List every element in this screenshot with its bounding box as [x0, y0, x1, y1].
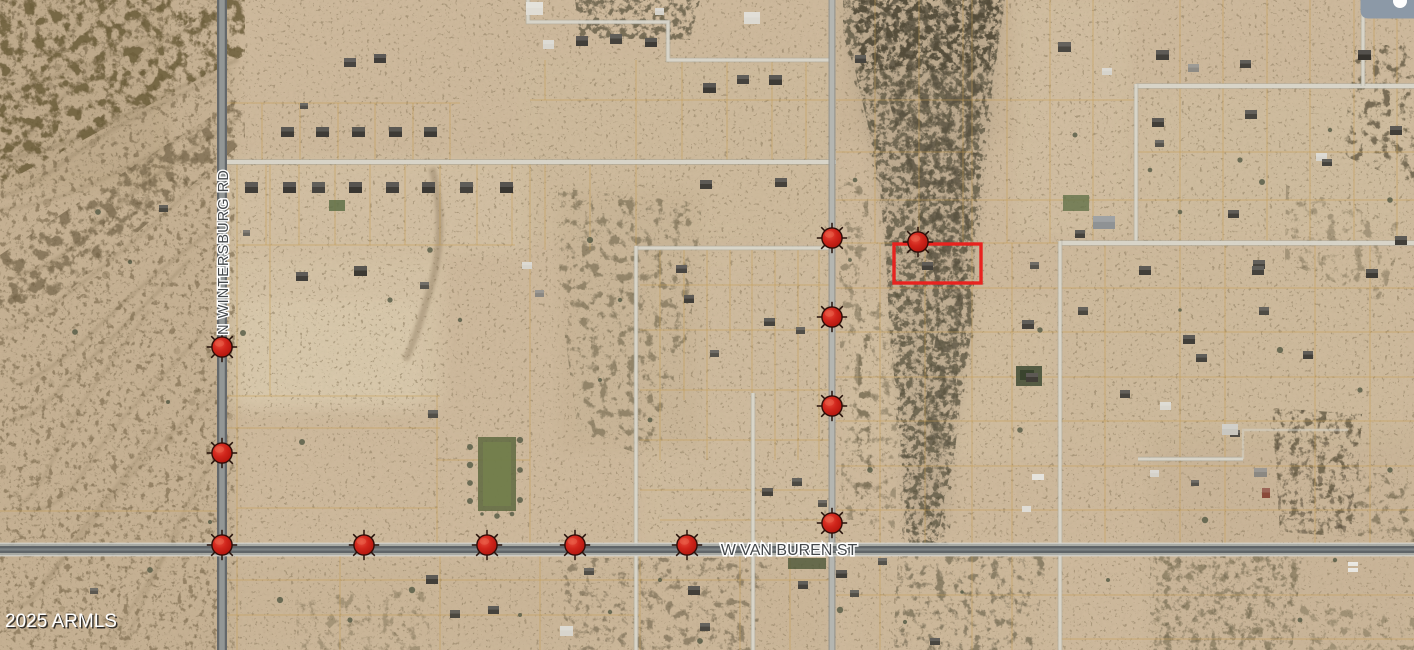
svg-text:2025 ARMLS: 2025 ARMLS	[5, 611, 117, 632]
svg-text:N WINTERSBURG RD: N WINTERSBURG RD	[216, 169, 232, 335]
svg-text:W VAN BUREN ST: W VAN BUREN ST	[721, 542, 858, 559]
